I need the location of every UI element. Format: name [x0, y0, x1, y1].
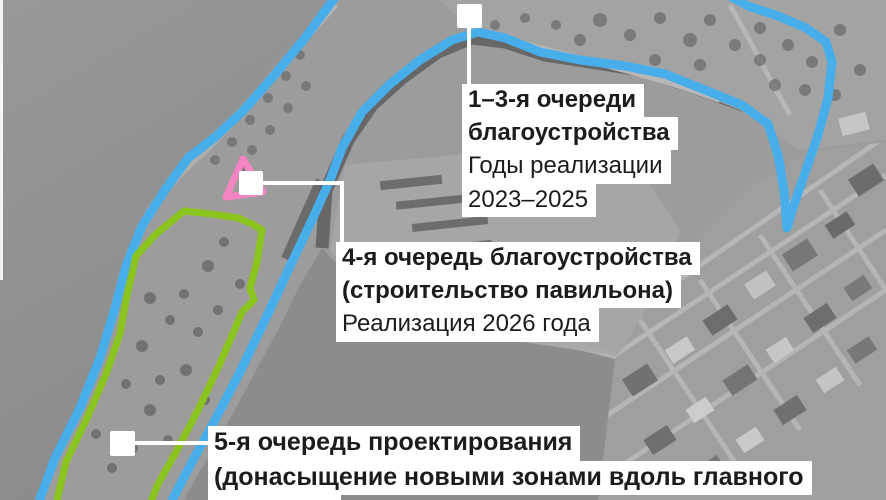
callout-title-line: 5-я очередь проектирования	[208, 426, 580, 461]
callout-subtitle-line: Годы реализации	[462, 150, 671, 183]
left-edge-strip	[0, 0, 3, 280]
callout-subtitle-line: Реализация 2026 года	[336, 308, 599, 341]
callout-title-line: благоустройства	[462, 117, 678, 150]
callout-title-line: (донасыщение новыми зонами вдоль главног…	[208, 461, 812, 496]
callout-title-line: транзита)	[208, 495, 341, 500]
callout-subtitle-line: 2023–2025	[462, 184, 596, 217]
callout-title-line: (строительство павильона)	[336, 275, 681, 308]
marker-square-phase-1-3	[457, 4, 482, 28]
callout-phase-4: 4-я очередь благоустройства (строительст…	[336, 242, 700, 342]
callout-title-line: 4-я очередь благоустройства	[336, 242, 700, 275]
callout-phase-1-3: 1–3-я очереди благоустройства Годы реали…	[462, 84, 678, 217]
marker-square-phase-4	[239, 171, 263, 195]
marker-square-phase-5	[110, 431, 135, 456]
map-infographic: 1–3-я очереди благоустройства Годы реали…	[0, 0, 886, 500]
callout-title-line: 1–3-я очереди	[462, 84, 644, 117]
callout-phase-5: 5-я очередь проектирования (донасыщение …	[208, 426, 812, 500]
